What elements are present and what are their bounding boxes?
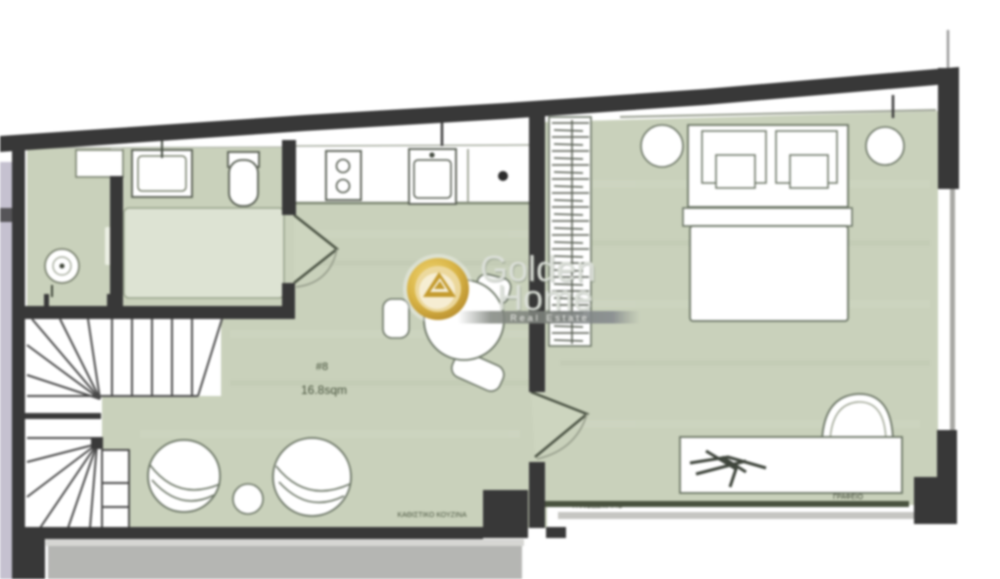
svg-text:Real Estate: Real Estate — [510, 313, 590, 323]
svg-text:#8: #8 — [316, 361, 328, 373]
svg-text:16.8sqm: 16.8sqm — [301, 383, 347, 397]
svg-text:ΚΑΘΙΣΤΙΚΟ ΚΟΥΖΙΝΑ: ΚΑΘΙΣΤΙΚΟ ΚΟΥΖΙΝΑ — [397, 512, 467, 519]
svg-text:ΓΡΑΦΕΙΟ: ΓΡΑΦΕΙΟ — [833, 494, 864, 501]
